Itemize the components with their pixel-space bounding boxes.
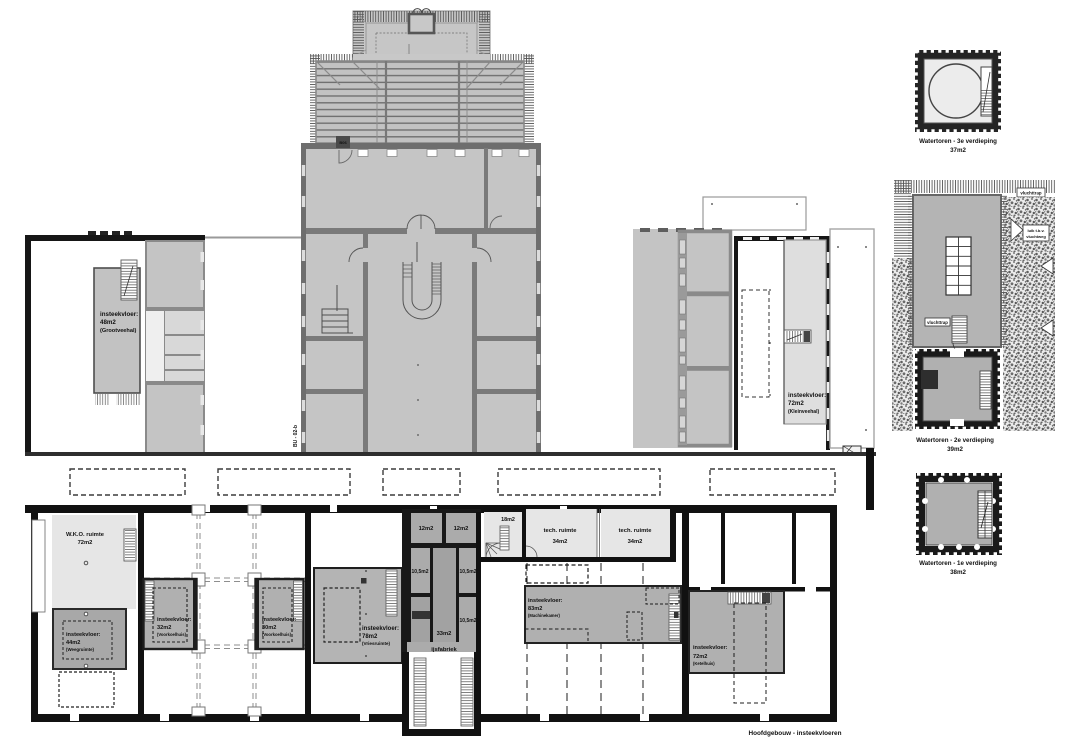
svg-text:(Weegruimte): (Weegruimte) [66, 647, 95, 652]
svg-text:30m2: 30m2 [262, 625, 276, 631]
svg-text:vluchttrap: vluchttrap [927, 320, 948, 325]
svg-text:(Voorkoelhuis): (Voorkoelhuis) [262, 632, 292, 637]
svg-text:insteekvloer:: insteekvloer: [66, 632, 101, 638]
svg-text:Hoofdgebouw - insteekvloeren: Hoofdgebouw - insteekvloeren [748, 730, 841, 737]
svg-text:Watertoren - 1e verdieping: Watertoren - 1e verdieping [919, 560, 997, 567]
svg-text:38m2: 38m2 [950, 569, 966, 576]
svg-text:48m2: 48m2 [100, 319, 116, 326]
svg-text:Watertoren - 3e verdieping: Watertoren - 3e verdieping [919, 138, 997, 145]
svg-text:tech. ruimte: tech. ruimte [544, 528, 578, 534]
svg-text:18m2: 18m2 [501, 517, 515, 523]
svg-text:(Vriesruimte): (Vriesruimte) [362, 641, 391, 646]
svg-text:39m2: 39m2 [947, 446, 963, 453]
svg-text:72m2: 72m2 [788, 400, 804, 407]
svg-text:(Kleinveehal): (Kleinveehal) [788, 409, 819, 415]
svg-text:(Ketelhuis): (Ketelhuis) [693, 661, 715, 666]
svg-text:(Machinekamer): (Machinekamer) [528, 613, 560, 618]
svg-text:10,5m2: 10,5m2 [412, 569, 429, 575]
svg-text:33m2: 33m2 [437, 631, 452, 637]
svg-text:Watertoren - 2e verdieping: Watertoren - 2e verdieping [916, 437, 994, 444]
svg-text:W.K.O. ruimte: W.K.O. ruimte [66, 532, 105, 538]
svg-text:insteekvloer:: insteekvloer: [693, 645, 728, 651]
svg-text:vluchtweg: vluchtweg [1026, 234, 1046, 239]
svg-text:32m2: 32m2 [157, 625, 171, 631]
svg-text:insteekvloer:: insteekvloer: [788, 392, 826, 399]
svg-text:12m2: 12m2 [419, 526, 434, 532]
svg-text:tech. ruimte: tech. ruimte [619, 528, 653, 534]
svg-text:insteekvloer:: insteekvloer: [157, 617, 192, 623]
svg-text:37m2: 37m2 [950, 147, 966, 154]
svg-text:78m2: 78m2 [362, 634, 378, 640]
svg-text:10,5m2: 10,5m2 [460, 618, 477, 624]
svg-text:luik t.b.v.: luik t.b.v. [1027, 228, 1044, 233]
svg-text:12m2: 12m2 [454, 526, 469, 532]
svg-text:72m2: 72m2 [78, 540, 93, 546]
svg-text:(Grootveehal): (Grootveehal) [100, 328, 137, 334]
svg-text:34m2: 34m2 [553, 539, 568, 545]
svg-text:vluchttrap: vluchttrap [1020, 191, 1042, 196]
svg-text:10,5m2: 10,5m2 [460, 569, 477, 575]
svg-text:44m2: 44m2 [66, 640, 80, 646]
svg-text:BU - 02-b: BU - 02-b [293, 425, 299, 447]
svg-text:72m2: 72m2 [693, 654, 707, 660]
svg-text:B06: B06 [339, 140, 347, 145]
svg-text:34m2: 34m2 [628, 539, 643, 545]
svg-text:insteekvloer:: insteekvloer: [262, 617, 297, 623]
svg-text:insteekvloer:: insteekvloer: [100, 311, 138, 318]
svg-text:83m2: 83m2 [528, 606, 542, 612]
svg-text:insteekvloer:: insteekvloer: [528, 598, 563, 604]
svg-text:insteekvloer:: insteekvloer: [362, 626, 399, 632]
svg-text:(Voorkoelhuis): (Voorkoelhuis) [157, 632, 187, 637]
